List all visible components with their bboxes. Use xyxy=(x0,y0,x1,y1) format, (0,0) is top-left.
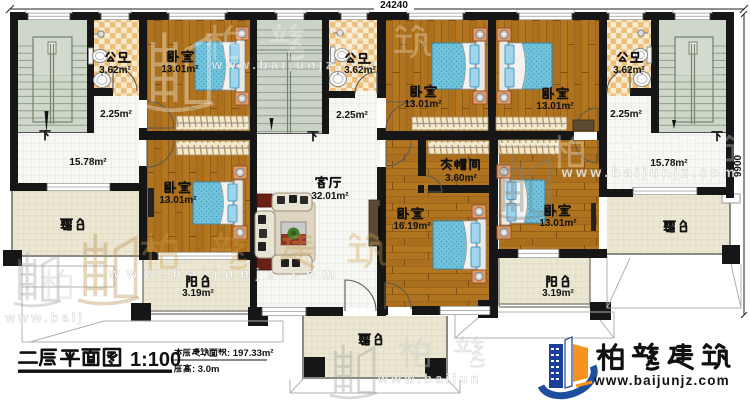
svg-text:3.62m²: 3.62m² xyxy=(99,65,131,76)
svg-text:32.01m²: 32.01m² xyxy=(311,191,349,202)
svg-text:15.78m²: 15.78m² xyxy=(69,157,107,168)
svg-text:: 197.33m²: : 197.33m² xyxy=(227,348,273,359)
svg-text:24240: 24240 xyxy=(380,0,408,11)
svg-text:13.01m²: 13.01m² xyxy=(159,195,197,206)
svg-text:3.60m²: 3.60m² xyxy=(445,173,477,184)
svg-text:13.01m²: 13.01m² xyxy=(536,101,574,112)
svg-text:15.78m²: 15.78m² xyxy=(650,158,688,169)
svg-text:: 3.0m: : 3.0m xyxy=(192,364,219,375)
svg-text:www.baijunjz.com: www.baijunjz.com xyxy=(593,373,730,388)
svg-text:16.19m²: 16.19m² xyxy=(393,221,431,232)
svg-text:3.19m²: 3.19m² xyxy=(542,288,574,299)
svg-text:www.baij: www.baij xyxy=(4,310,85,325)
svg-text:13.01m²: 13.01m² xyxy=(161,64,199,75)
svg-text:13.01m²: 13.01m² xyxy=(404,99,442,110)
svg-text:3.62m²: 3.62m² xyxy=(613,65,645,76)
svg-text:2.25m²: 2.25m² xyxy=(336,110,368,121)
svg-text:2.25m²: 2.25m² xyxy=(610,109,642,120)
svg-text:9900: 9900 xyxy=(733,154,744,177)
svg-text:2.25m²: 2.25m² xyxy=(100,109,132,120)
svg-text:13.01m²: 13.01m² xyxy=(539,218,577,229)
svg-text:www.baijunjz.com: www.baijunjz.com xyxy=(108,265,342,281)
svg-text:www.baijun: www.baijun xyxy=(377,372,482,386)
svg-text:3.19m²: 3.19m² xyxy=(182,288,214,299)
svg-text:3.62m²: 3.62m² xyxy=(344,65,376,76)
